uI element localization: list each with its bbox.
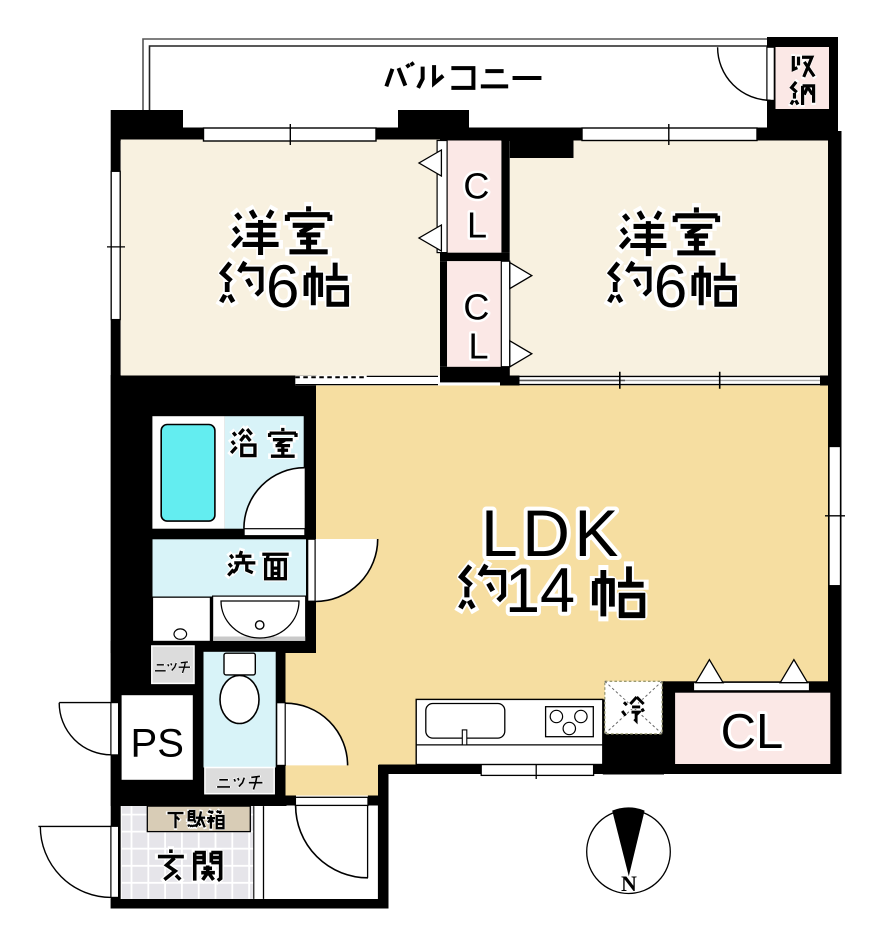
svg-text:6: 6 bbox=[654, 253, 687, 320]
svg-text:N: N bbox=[621, 871, 637, 896]
svg-text:C: C bbox=[463, 287, 489, 328]
svg-text:PS: PS bbox=[131, 722, 184, 766]
svg-text:L: L bbox=[467, 204, 487, 245]
svg-text:14: 14 bbox=[505, 556, 575, 626]
svg-text:C: C bbox=[463, 165, 489, 206]
svg-text:CL: CL bbox=[721, 705, 784, 759]
svg-text:L: L bbox=[468, 326, 488, 367]
svg-text:6: 6 bbox=[266, 253, 299, 320]
